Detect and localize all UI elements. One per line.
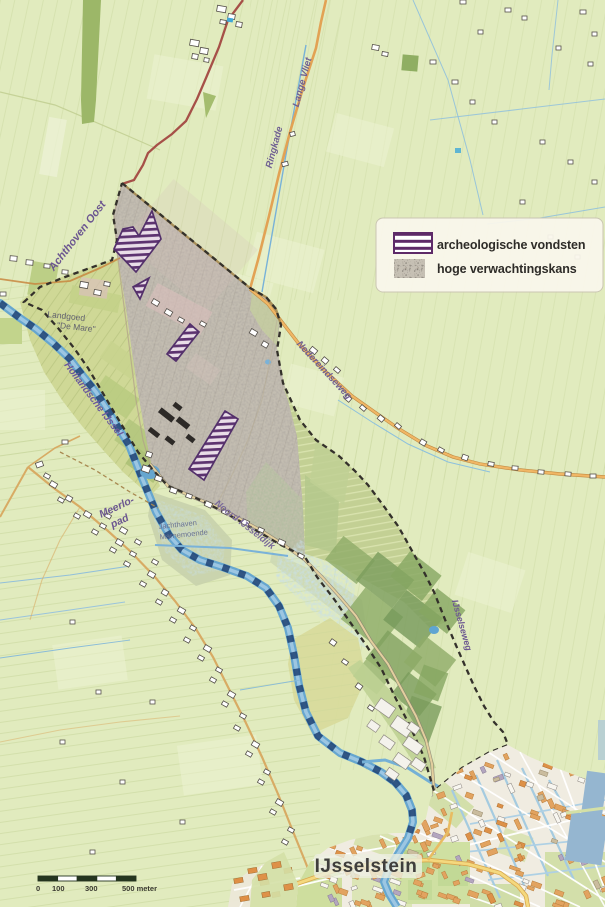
svg-text:500 meter: 500 meter [122, 884, 157, 893]
svg-text:100: 100 [52, 884, 65, 893]
svg-text:IJsselstein: IJsselstein [315, 856, 418, 877]
svg-text:archeologische vondsten: archeologische vondsten [437, 238, 585, 252]
svg-text:300: 300 [85, 884, 98, 893]
svg-text:0: 0 [36, 884, 40, 893]
svg-text:hoge verwachtingskans: hoge verwachtingskans [437, 262, 577, 276]
